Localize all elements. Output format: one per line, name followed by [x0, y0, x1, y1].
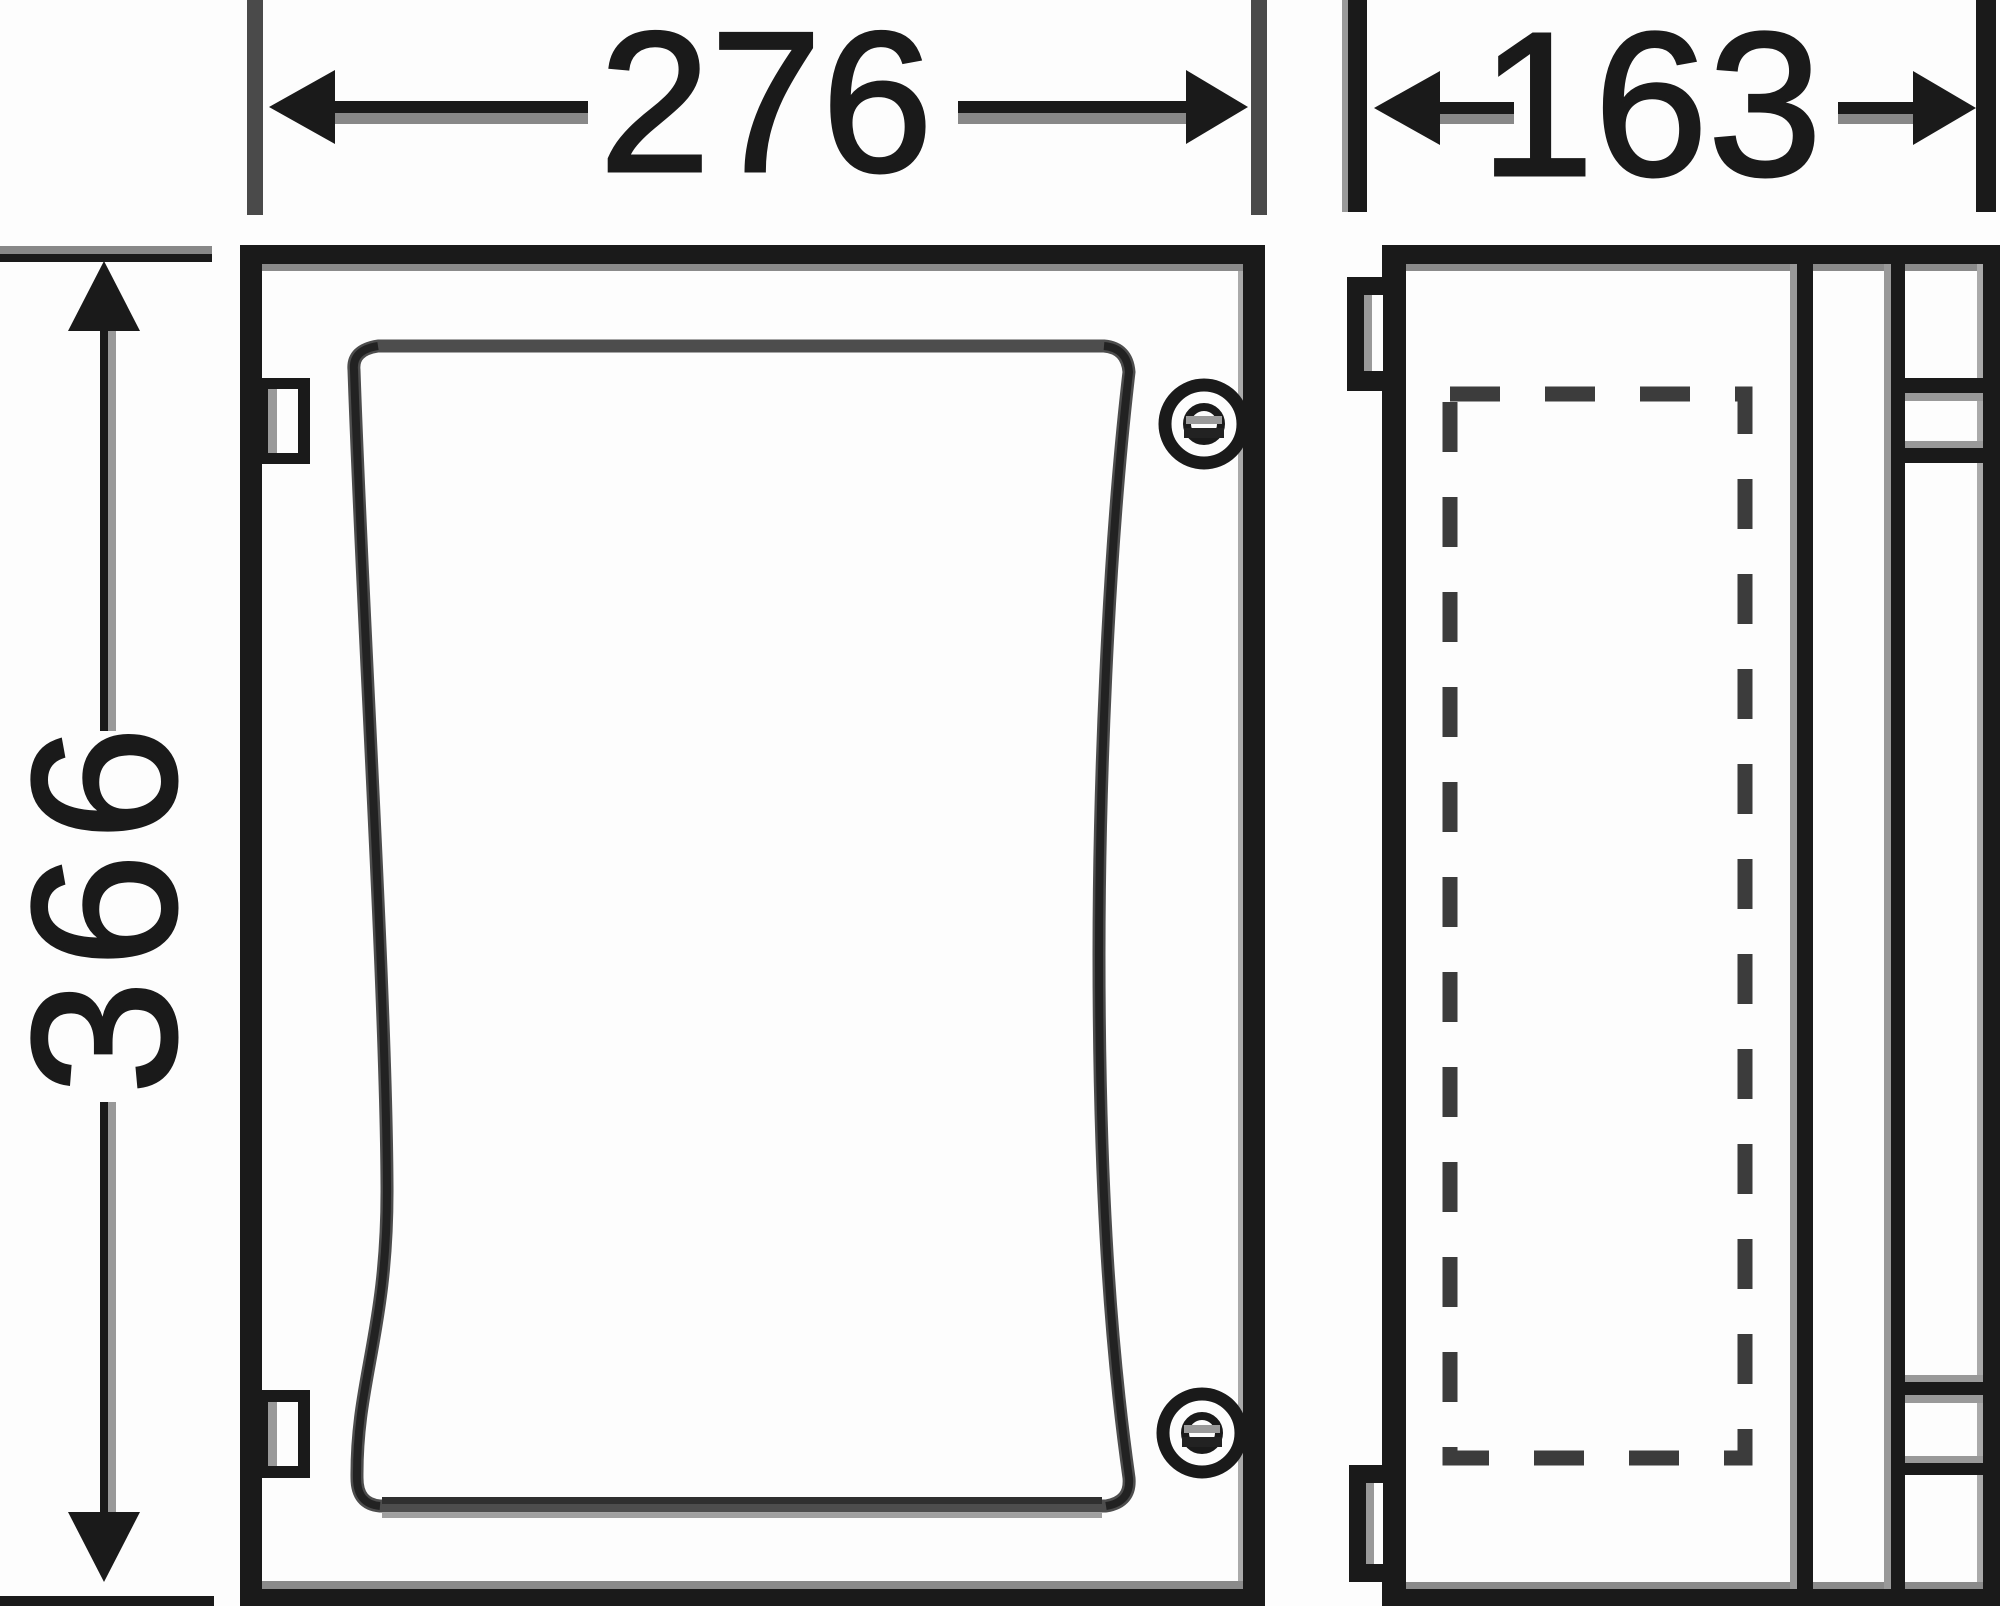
- svg-text:163: 163: [1480, 0, 1822, 219]
- svg-text:366: 366: [0, 713, 219, 1094]
- svg-text:276: 276: [599, 0, 933, 214]
